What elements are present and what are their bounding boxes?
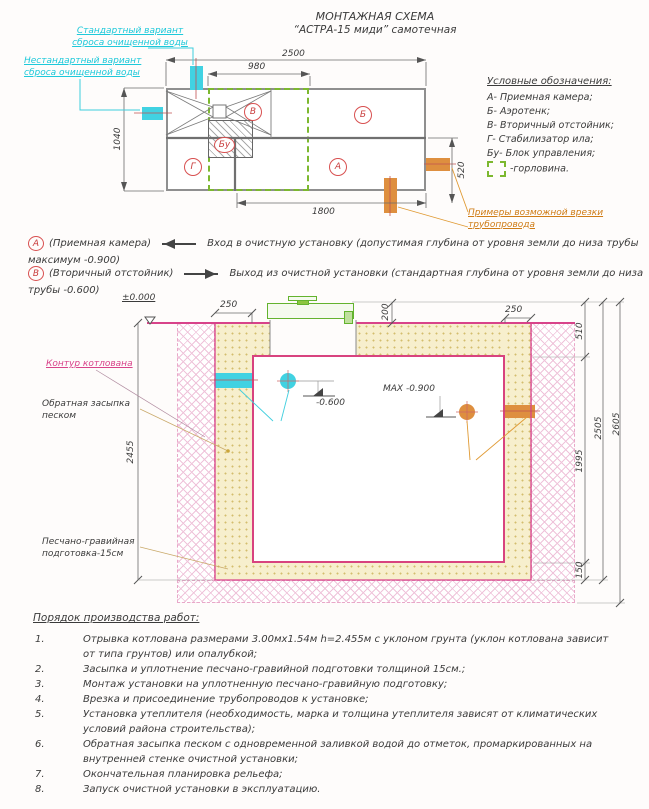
legend-title: Условные обозначения: xyxy=(487,76,614,87)
neck-symbol-icon xyxy=(487,161,506,177)
section-dim-1995: 1995 xyxy=(575,450,585,473)
note-b-badge: В xyxy=(28,266,44,281)
plan-dim-980: 980 xyxy=(248,62,265,72)
note-b-text: Выход из очистной установки (стандартная… xyxy=(229,268,643,279)
legend-item-b: Б- Аэротенк; xyxy=(487,105,614,119)
procedure-item: 2.Засыпка и уплотнение песчано-гравийной… xyxy=(33,662,633,677)
label-pit-contour: Контур котлована xyxy=(46,359,133,371)
procedure-title: Порядок производства работ: xyxy=(33,612,633,624)
procedure-item: 5.Установка утеплителя (необходимость, м… xyxy=(33,707,633,737)
note-a-text: Вход в очистную установку (допустимая гл… xyxy=(207,238,638,249)
label-backfill: Обратная засыпка песком xyxy=(42,399,130,422)
section-inlet-pipe xyxy=(505,405,535,418)
legend-item-a: А- Приемная камера; xyxy=(487,91,614,105)
plan-dim-1040: 1040 xyxy=(113,128,123,151)
label-nonstandard-discharge: Нестандартный вариант сброса очищенной в… xyxy=(24,56,156,79)
note-secondary-settler: В (Вторичный отстойник) Выход из очистно… xyxy=(28,266,643,296)
procedure-item: 6.Обратная засыпка песком с одновременно… xyxy=(33,737,633,767)
section-dim-2455: 2455 xyxy=(126,441,136,464)
neck-cap-stem xyxy=(297,300,309,305)
zone-badge-receiving-chamber: А xyxy=(329,158,347,176)
procedure-item: 4.Врезка и присоединение трубопроводов к… xyxy=(33,692,633,707)
soil-hatch-bottom xyxy=(177,580,575,603)
plan-discharge-pipe-nonstandard xyxy=(142,107,163,120)
section-dim-2505: 2505 xyxy=(594,417,604,440)
legend: Условные обозначения: А- Приемная камера… xyxy=(487,76,614,177)
level-minus-0600: -0.600 xyxy=(316,398,345,408)
note-a-name: (Приемная камера) xyxy=(49,238,151,249)
note-a-badge: А xyxy=(28,236,44,251)
drawing-subtitle: “АСТРА-15 миди” самотечная xyxy=(230,24,520,36)
tank-body-section xyxy=(252,355,505,563)
legend-item-bu: Бу- Блок управления; xyxy=(487,147,614,161)
level-max-0900: МАХ -0.900 xyxy=(383,384,435,394)
procedure-item: 7.Окончательная планировка рельефа; xyxy=(33,767,633,782)
sand-cover-right xyxy=(356,323,505,355)
soil-hatch-right xyxy=(531,323,575,603)
legend-item-g: Г- Стабилизатор ила; xyxy=(487,133,614,147)
neck-cover-plate xyxy=(267,303,354,319)
legend-item-v: В- Вторичный отстойник; xyxy=(487,119,614,133)
mounting-scheme-drawing: МОНТАЖНАЯ СХЕМА “АСТРА-15 миди” самотечн… xyxy=(0,0,649,809)
section-dim-200: 200 xyxy=(381,303,391,320)
sand-backfill-left xyxy=(215,323,252,580)
sand-preparation-layer xyxy=(215,563,531,580)
procedure-item: 8.Запуск очистной установки в эксплуатац… xyxy=(33,782,633,797)
procedure-item: 3.Монтаж установки на уплотненную песчан… xyxy=(33,677,633,692)
plan-inlet-pipe-bottom xyxy=(384,178,397,213)
section-dim-150: 150 xyxy=(575,561,585,578)
legend-item-neck: -горловина. xyxy=(510,164,569,175)
procedure-item: 1.Отрывка котлована размерами 3.00мх1.54… xyxy=(33,632,633,662)
procedure-section: Порядок производства работ: 1.Отрывка ко… xyxy=(33,612,633,797)
section-dim-510: 510 xyxy=(575,322,585,339)
section-dim-2605: 2605 xyxy=(612,413,622,436)
drawing-title: МОНТАЖНАЯ СХЕМА xyxy=(230,10,520,23)
arrow-right-icon xyxy=(184,273,218,275)
note-b-name: (Вторичный отстойник) xyxy=(49,268,173,279)
zone-badge-sludge-stabilizer: Г xyxy=(184,158,202,176)
sand-cover-left xyxy=(252,323,270,355)
sand-backfill-right xyxy=(505,323,531,580)
zone-badge-aerotank: Б xyxy=(354,106,372,124)
plan-discharge-pipe-standard xyxy=(190,66,203,90)
note-a-text2: максимум -0.900) xyxy=(28,255,639,266)
note-receiving-chamber: А (Приемная камера) Вход в очистную уста… xyxy=(28,236,639,266)
plan-dim-2500: 2500 xyxy=(282,49,305,59)
plan-dim-520: 520 xyxy=(457,161,467,178)
section-dim-250-right: 250 xyxy=(505,305,522,315)
plan-inlet-pipe-right xyxy=(426,158,450,171)
section-discharge-pipe xyxy=(215,373,252,388)
label-sand-preparation: Песчано-гравийная подготовка-15см xyxy=(42,537,135,560)
soil-hatch-left xyxy=(177,323,215,603)
label-pipe-tap-examples-plan: Примеры возможной врезки трубопровода xyxy=(468,208,618,231)
neck-cover-hook xyxy=(344,311,353,324)
zone-badge-secondary-settler: В xyxy=(244,103,262,121)
label-standard-discharge: Стандартный вариант сброса очищенной вод… xyxy=(64,26,196,49)
plan-dim-1800: 1800 xyxy=(312,207,335,217)
zone-badge-control-unit: Бу xyxy=(214,137,235,153)
section-dim-250-left: 250 xyxy=(220,300,237,310)
note-b-text2: трубы -0.600) xyxy=(28,285,643,296)
arrow-left-icon xyxy=(162,243,196,245)
